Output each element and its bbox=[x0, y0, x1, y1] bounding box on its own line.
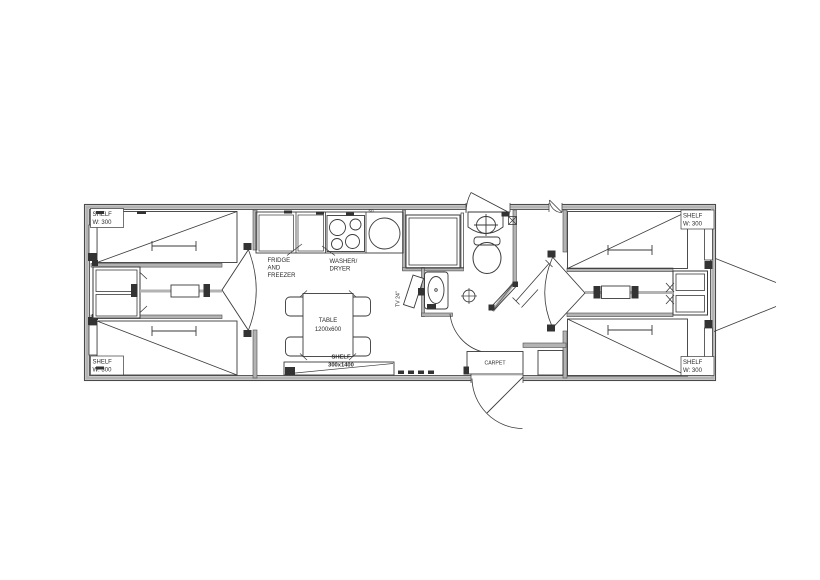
washer-label-1: WASHER/ bbox=[330, 259, 358, 265]
bottom-door-opening bbox=[471, 375, 523, 384]
top-door-opening bbox=[466, 203, 510, 212]
fridge-label-2: AND bbox=[268, 266, 281, 272]
sliding-door-right bbox=[602, 286, 631, 299]
wardrobe-right bbox=[673, 271, 708, 315]
fridge-label-1: FRIDGE bbox=[268, 258, 291, 264]
fridge-label-3: FREEZER bbox=[268, 273, 297, 279]
shelf-label-tl-2: W: 300 bbox=[93, 220, 113, 226]
shelf-label-tr-2: W: 300 bbox=[683, 222, 703, 228]
washer-label-2: DRYER bbox=[330, 267, 352, 273]
carpet-mat: CARPET bbox=[464, 352, 524, 375]
tv-label: TV 24" bbox=[396, 291, 402, 307]
floor-plan-drawing: SHELF W: 300 SHELF W: 300 SHELF W: 300 S… bbox=[0, 0, 820, 580]
entry-door-bottom bbox=[472, 377, 523, 429]
long-shelf-label-2: 300x1400 bbox=[328, 363, 354, 369]
shelf-label-bl-1: SHELF bbox=[93, 360, 113, 366]
shelf-label-tr-1: SHELF bbox=[683, 214, 703, 220]
floor-plan-page: SHELF W: 300 SHELF W: 300 SHELF W: 300 S… bbox=[0, 0, 820, 580]
table-label-2: 1200x600 bbox=[315, 327, 342, 333]
shelf-label-br-2: W: 300 bbox=[683, 368, 703, 374]
table-label-1: TABLE bbox=[319, 318, 338, 324]
sink-dim-label: 50 bbox=[369, 209, 375, 214]
projection-lines bbox=[714, 259, 776, 332]
shelf-label-br-1: SHELF bbox=[683, 360, 703, 366]
sliding-door-left bbox=[171, 285, 199, 297]
long-shelf-label-1: SHELF bbox=[331, 355, 350, 361]
carpet-label: CARPET bbox=[484, 361, 506, 367]
